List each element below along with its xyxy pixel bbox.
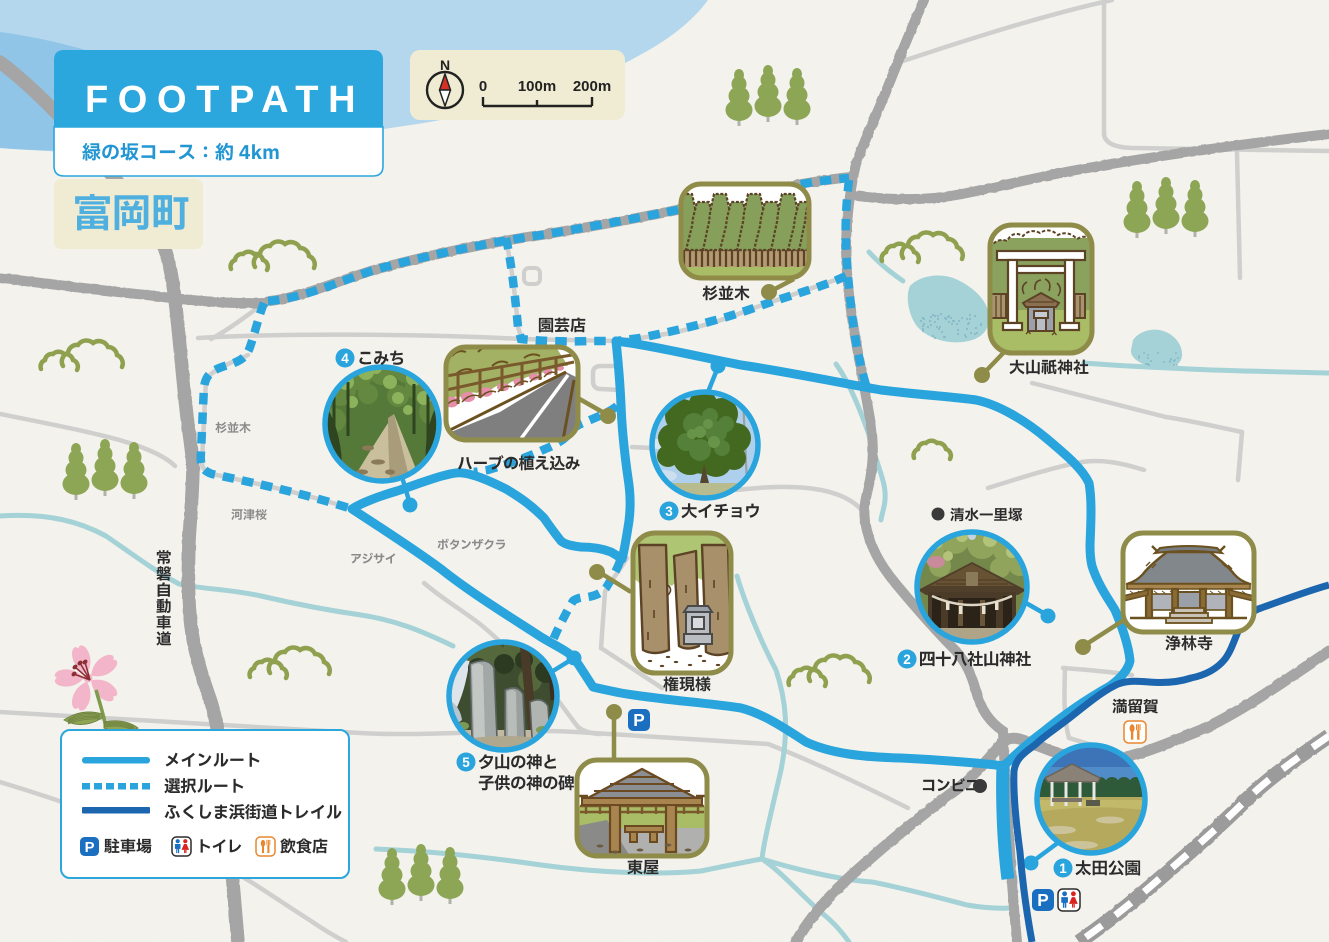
svg-text:4: 4: [341, 351, 349, 366]
svg-text:P: P: [1037, 890, 1048, 910]
svg-text:P: P: [633, 710, 644, 730]
svg-text:100m: 100m: [518, 78, 556, 95]
svg-text:5: 5: [462, 755, 470, 770]
svg-text:P: P: [85, 840, 95, 856]
svg-text:2: 2: [903, 652, 911, 667]
svg-text:N: N: [440, 57, 450, 73]
svg-text:200m: 200m: [573, 78, 611, 95]
svg-text:FOOTPATH: FOOTPATH: [85, 79, 365, 121]
svg-text:1: 1: [1059, 861, 1067, 876]
svg-text:3: 3: [665, 504, 673, 519]
svg-text:0: 0: [479, 78, 487, 95]
